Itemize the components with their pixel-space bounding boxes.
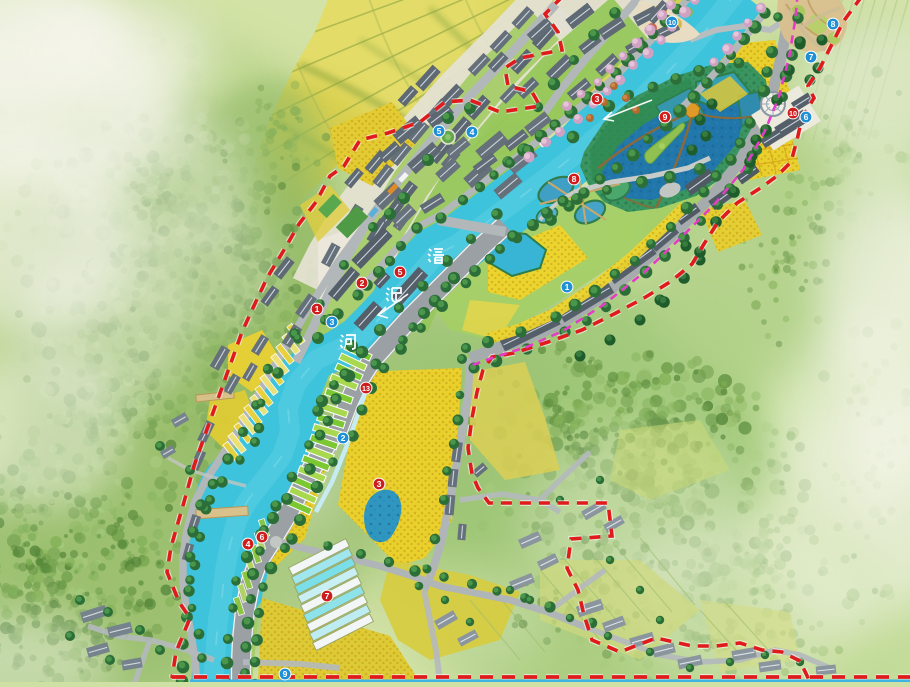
- svg-text:7: 7: [325, 591, 330, 601]
- svg-text:3: 3: [330, 317, 335, 327]
- svg-text:6: 6: [804, 112, 809, 122]
- svg-text:10: 10: [789, 109, 797, 118]
- svg-text:6: 6: [260, 532, 265, 542]
- svg-text:5: 5: [437, 126, 442, 136]
- svg-text:7: 7: [809, 52, 814, 62]
- svg-text:4: 4: [246, 539, 251, 549]
- svg-text:9: 9: [663, 112, 668, 122]
- svg-text:2: 2: [341, 433, 346, 443]
- svg-text:1: 1: [565, 282, 570, 292]
- svg-text:8: 8: [572, 174, 577, 184]
- svg-text:10: 10: [668, 18, 676, 27]
- svg-text:5: 5: [398, 267, 403, 277]
- svg-text:2: 2: [360, 278, 365, 288]
- svg-text:9: 9: [283, 669, 288, 679]
- svg-text:4: 4: [470, 127, 475, 137]
- svg-text:1: 1: [315, 304, 320, 314]
- svg-text:3: 3: [595, 94, 600, 104]
- svg-text:13: 13: [362, 384, 370, 393]
- svg-text:8: 8: [831, 19, 836, 29]
- svg-text:3: 3: [377, 479, 382, 489]
